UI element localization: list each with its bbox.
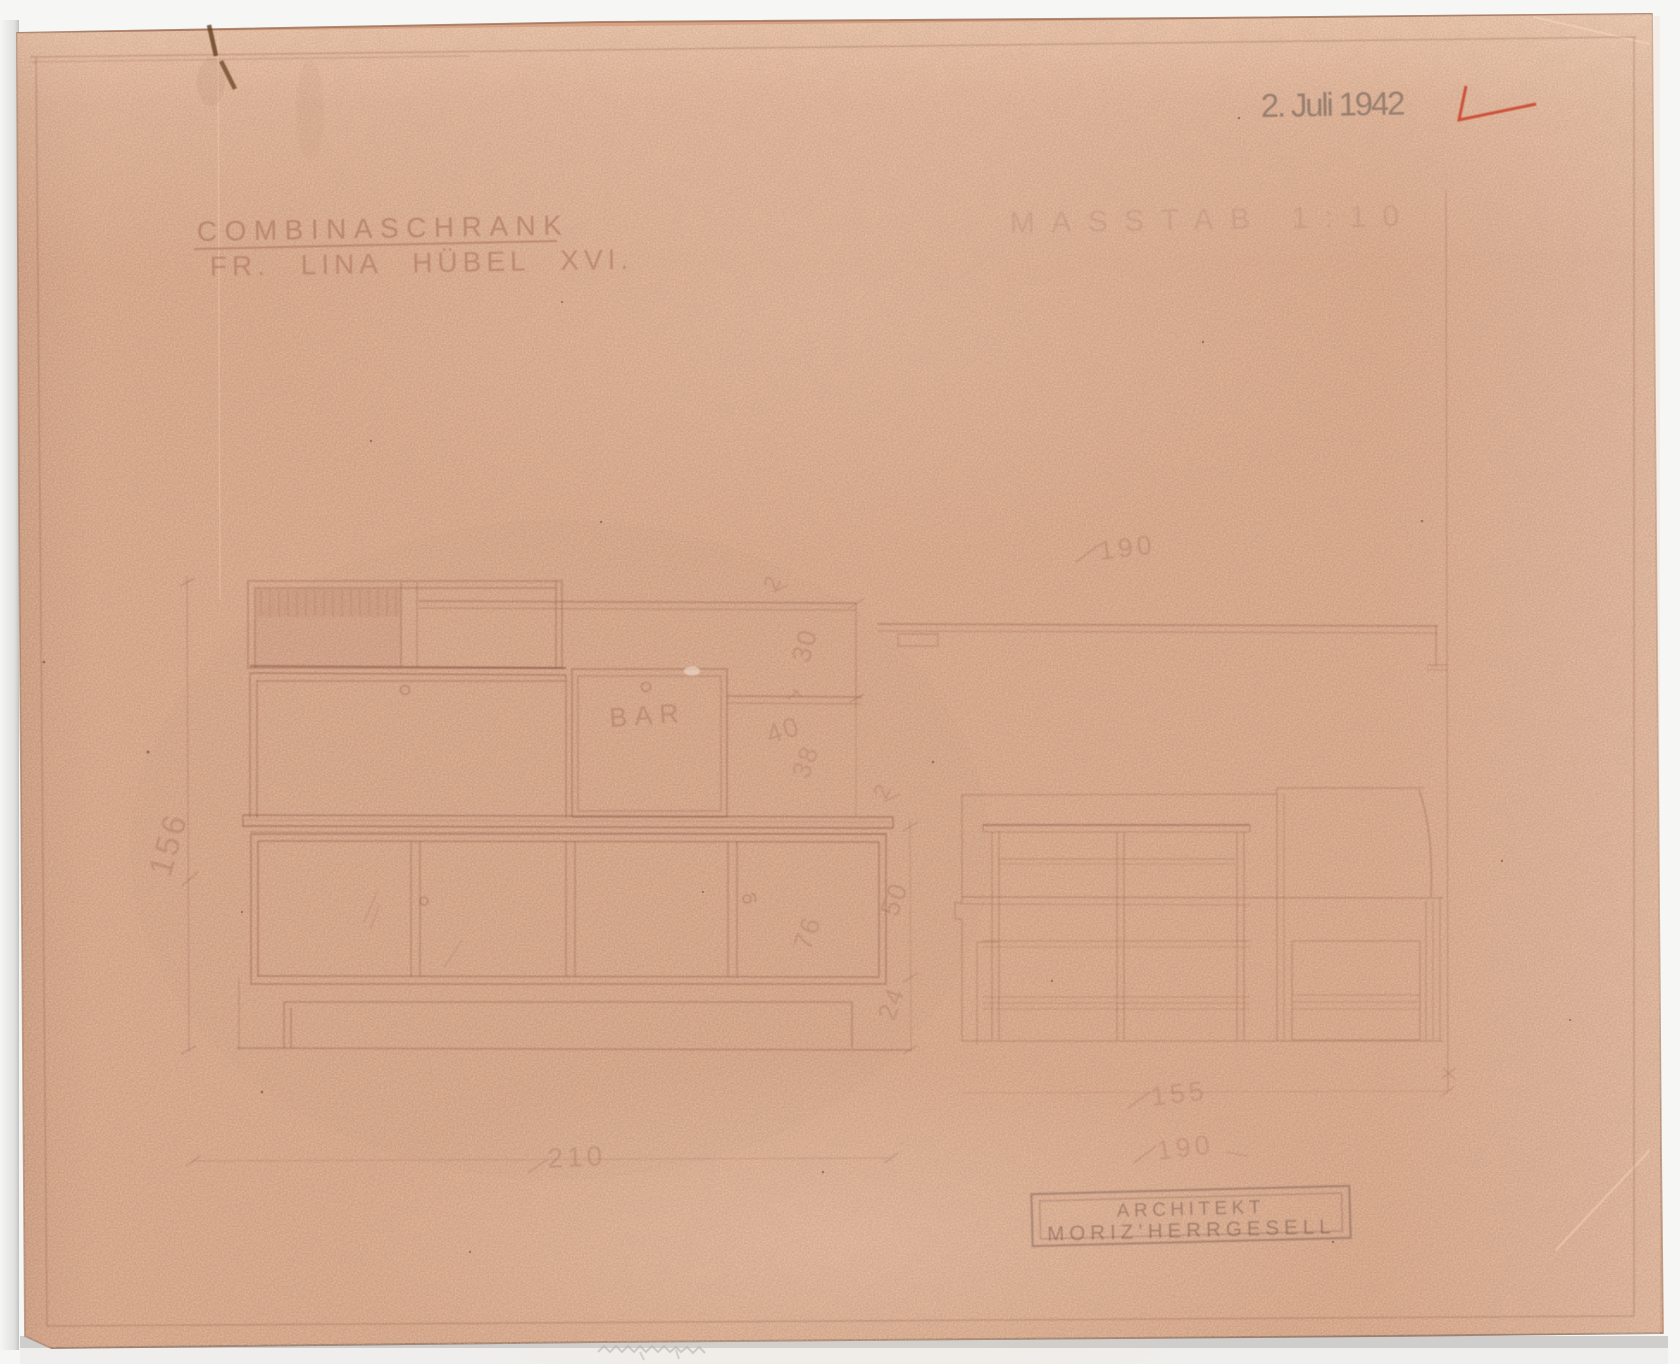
svg-text:2. Juli 1942: 2. Juli 1942 <box>1260 85 1404 124</box>
svg-text:210: 210 <box>547 1140 607 1174</box>
svg-text:BAR: BAR <box>608 698 686 733</box>
